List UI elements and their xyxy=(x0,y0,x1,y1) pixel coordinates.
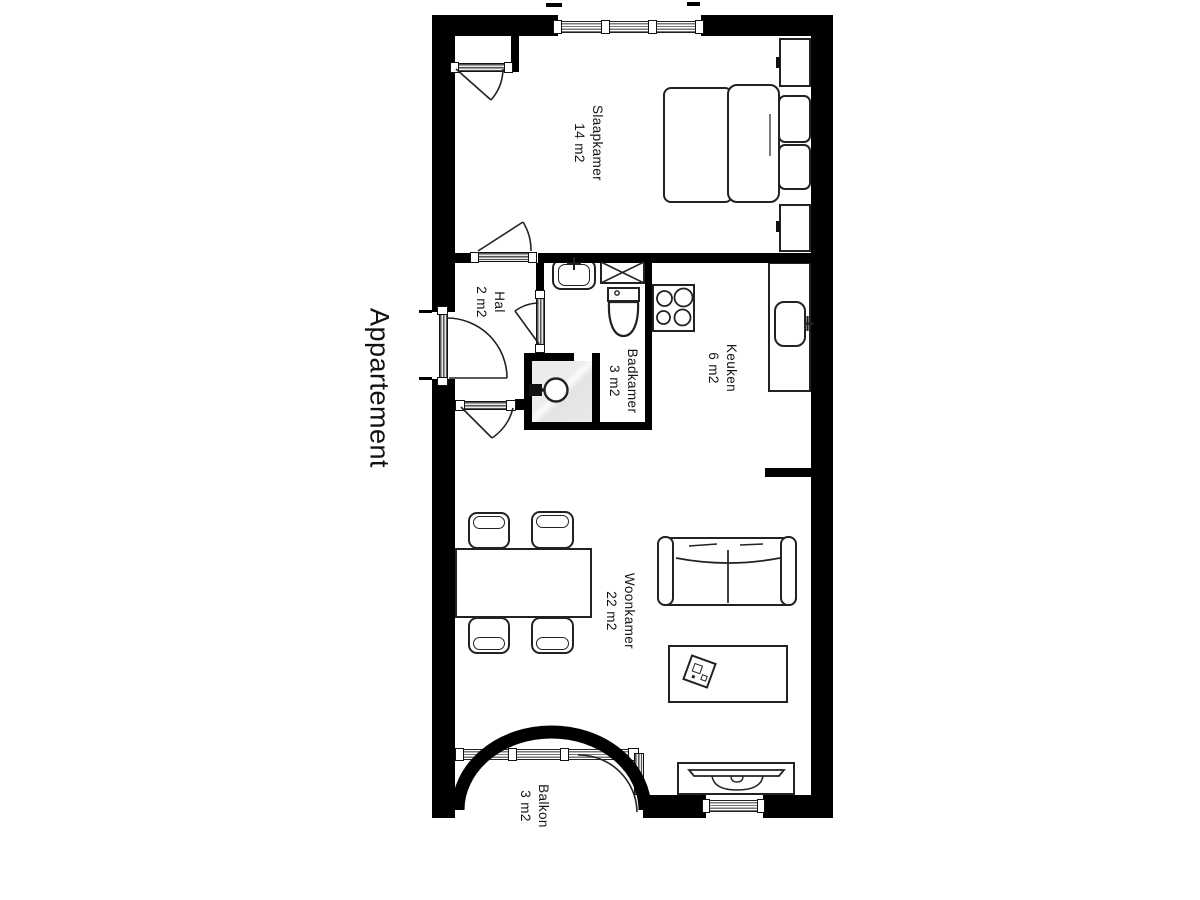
wall-left-upper xyxy=(432,15,455,312)
wall-top-left xyxy=(432,15,558,36)
room-area: 2 m2 xyxy=(472,286,490,318)
balcony-door-arc xyxy=(578,755,637,812)
balcony-glazing xyxy=(455,749,635,760)
nightstand-top xyxy=(779,38,811,87)
wall-bathroom-bottom xyxy=(524,422,652,430)
closet-door-hinge-left xyxy=(450,62,459,73)
livingroom-door-hinge-right xyxy=(506,400,516,411)
room-name: Slaapkamer xyxy=(588,105,606,181)
wall-bottom-right xyxy=(763,795,833,818)
chair-backrest xyxy=(536,637,569,650)
decor-square-small xyxy=(700,674,708,682)
tv-cabinet xyxy=(677,762,795,795)
closet-door-arc xyxy=(491,69,503,100)
chair-backrest xyxy=(473,637,505,650)
bed-cover xyxy=(727,84,780,203)
room-label-slaapkamer: Slaapkamer 14 m2 xyxy=(570,105,606,181)
entry-door-arc xyxy=(447,318,507,378)
room-label-woonkamer: Woonkamer 22 m2 xyxy=(602,573,638,649)
wall-bathroom-right xyxy=(645,263,652,430)
closet-door-hinge-right xyxy=(504,62,513,73)
chair-top-right xyxy=(531,511,574,549)
floor-plan: Appartement Slaapkamer 14 m2 Hal 2 m2 Ba… xyxy=(0,0,1200,900)
entry-door-leaf xyxy=(439,314,448,378)
washing-machine xyxy=(600,261,645,284)
room-name: Woonkamer xyxy=(620,573,638,649)
room-area: 22 m2 xyxy=(602,573,620,649)
wall-right xyxy=(811,15,833,818)
wall-shower-right xyxy=(592,353,600,423)
bathroom-door-leaf xyxy=(536,298,545,345)
room-label-badkamer: Badkamer 3 m2 xyxy=(605,349,641,414)
bedroom-door-open-leaf xyxy=(478,222,523,251)
nightstand-bottom-handle xyxy=(776,221,780,232)
toilet-cistern xyxy=(607,287,640,302)
wash-basin-inner xyxy=(558,264,590,286)
sofa-armrest-left xyxy=(657,536,674,606)
entry-door-hinge-top xyxy=(437,306,448,315)
sofa-armrest-right xyxy=(780,536,797,606)
wall-kitchen-stub xyxy=(765,468,811,477)
closet-door-open-leaf xyxy=(456,69,491,100)
room-area: 6 m2 xyxy=(704,344,722,392)
chair-bottom-left xyxy=(468,617,510,654)
entry-frame-tick-bottom xyxy=(419,377,432,380)
bed-pillow-top xyxy=(778,95,811,143)
stove xyxy=(652,284,695,332)
balcony-door-leaf xyxy=(634,753,644,795)
chair-bottom-right xyxy=(531,617,574,654)
closet-door-leaf xyxy=(452,63,512,72)
entry-door-hinge-bottom xyxy=(437,377,448,386)
room-area: 3 m2 xyxy=(605,349,623,414)
room-name: Badkamer xyxy=(623,349,641,414)
room-area: 14 m2 xyxy=(570,105,588,181)
room-label-keuken: Keuken 6 m2 xyxy=(704,344,740,392)
plan-title: Appartement xyxy=(364,308,395,468)
entry-frame-tick-top xyxy=(419,310,432,313)
chair-backrest xyxy=(473,516,505,529)
dim-tick-right xyxy=(687,2,700,6)
bed-pillow-bottom xyxy=(778,144,811,190)
nightstand-top-handle xyxy=(776,57,780,68)
wall-bedroom-divider-right xyxy=(538,253,811,263)
room-label-balkon: Balkon 3 m2 xyxy=(516,784,552,828)
livingroom-window xyxy=(705,800,763,812)
wall-bottom-mid xyxy=(643,795,706,818)
bedroom-window-mullion-2 xyxy=(648,20,657,34)
bathroom-door-arc xyxy=(515,303,538,311)
nightstand-bottom xyxy=(779,204,811,252)
bedroom-window-mullion-1 xyxy=(601,20,610,34)
chair-backrest xyxy=(536,515,569,528)
livingroom-door-open-leaf xyxy=(461,407,492,438)
decor-dot xyxy=(691,675,695,679)
sofa-body xyxy=(658,537,797,606)
livingroom-door-hinge-left xyxy=(455,400,465,411)
wall-lr-door-stub xyxy=(515,399,527,410)
room-name: Keuken xyxy=(722,344,740,392)
shower-valve xyxy=(529,384,542,396)
bed-duvet xyxy=(663,87,733,203)
dim-tick-left xyxy=(546,3,562,7)
kitchen-sink xyxy=(774,301,806,347)
dining-table xyxy=(455,548,592,618)
balcony-glazing-mullion-2 xyxy=(560,748,569,761)
room-label-hal: Hal 2 m2 xyxy=(472,286,508,318)
livingroom-door-arc xyxy=(492,408,513,438)
wall-shower-top xyxy=(524,353,574,361)
bedroom-window-end-left xyxy=(553,20,562,34)
bedroom-door-leaf xyxy=(476,252,531,262)
livingroom-window-end-left xyxy=(702,799,710,813)
bedroom-door-arc xyxy=(523,222,531,251)
bedroom-door-hinge-left xyxy=(470,252,479,263)
wall-left-lower xyxy=(432,379,455,818)
balcony-glazing-end-left xyxy=(455,748,464,761)
room-area: 3 m2 xyxy=(516,784,534,828)
bathroom-door-hinge-bottom xyxy=(535,344,545,353)
bedroom-window xyxy=(556,21,702,33)
room-name: Hal xyxy=(490,286,508,318)
bedroom-door-hinge-right xyxy=(528,252,537,263)
balcony-glazing-mullion-1 xyxy=(508,748,517,761)
toilet-bowl xyxy=(609,302,638,336)
livingroom-window-end-right xyxy=(757,799,765,813)
bedroom-window-end-right xyxy=(695,20,704,34)
chair-top-left xyxy=(468,512,510,549)
decor-square-large xyxy=(692,663,704,675)
bathroom-door-hinge-top xyxy=(535,290,545,299)
room-name: Balkon xyxy=(534,784,552,828)
